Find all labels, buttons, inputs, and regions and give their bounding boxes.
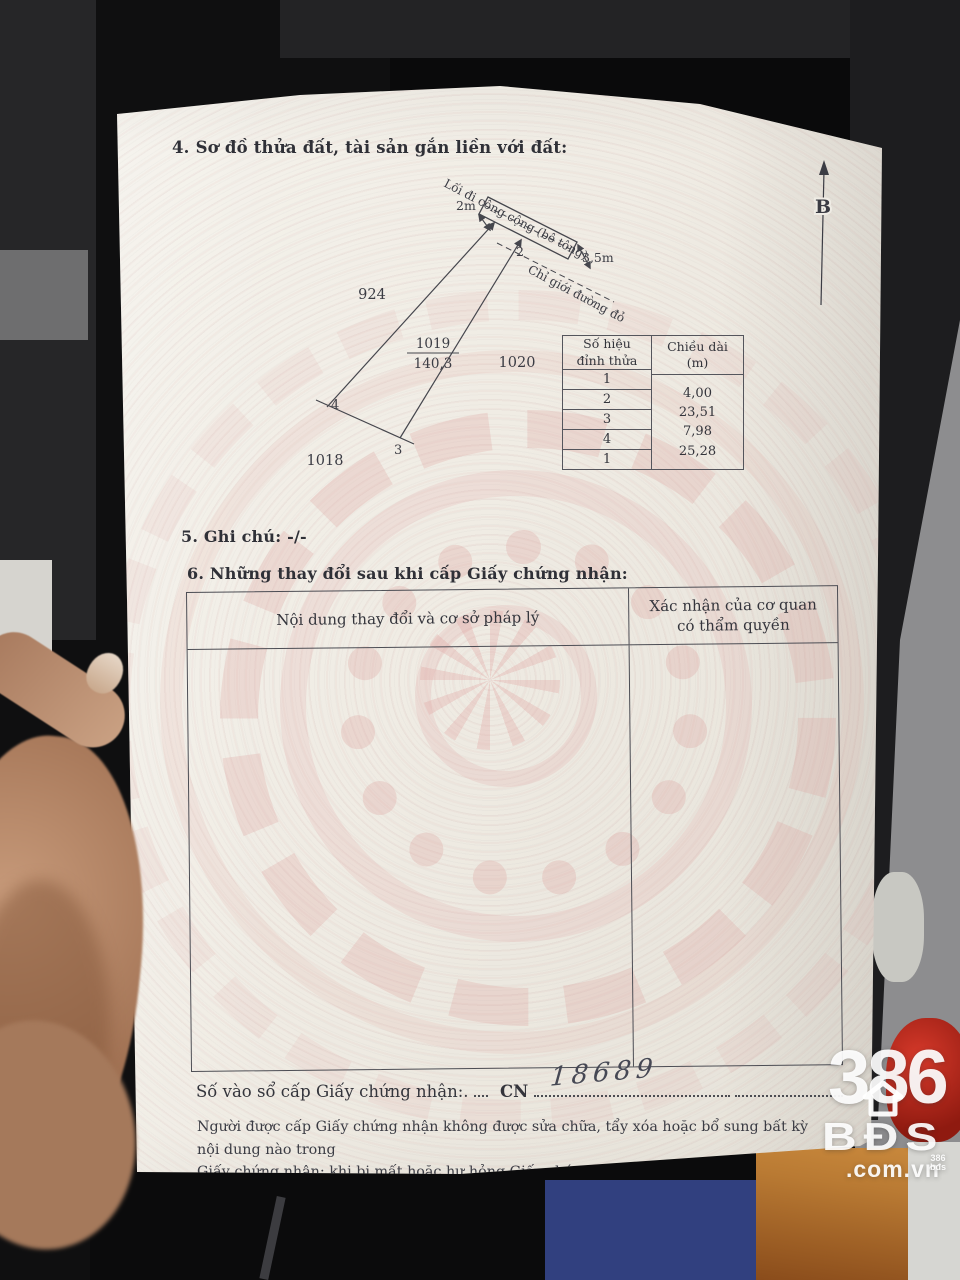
notice-line1: Người được cấp Giấy chứng nhận không đượ… xyxy=(197,1116,821,1161)
length-header-line2: (m) xyxy=(687,355,709,371)
neighbor-parcel-924: 924 xyxy=(358,287,386,303)
vertex-id-cell: 1 xyxy=(563,450,651,469)
changes-col1-header: Nội dung thay đổi và cơ sở pháp lý xyxy=(187,588,630,649)
changes-col2-line1: Xác nhận của cơ quan xyxy=(649,594,817,616)
watermark-mini-logo: 386 bđs xyxy=(930,1154,946,1172)
dotted-leader xyxy=(735,1082,843,1097)
neighbor-parcel-1020: 1020 xyxy=(499,355,536,371)
changes-table-body xyxy=(188,643,842,1071)
background-door-lintel xyxy=(280,0,920,58)
changes-table-header: Nội dung thay đổi và cơ sở pháp lý Xác n… xyxy=(187,586,838,650)
length-column-header: Chiều dài (m) xyxy=(652,336,743,375)
watermark-mini-brand: bđs xyxy=(930,1163,946,1172)
dotted-leader: 18689 xyxy=(534,1082,730,1097)
vertex-id-cell: 1 xyxy=(563,370,651,390)
length-header-line1: Chiều dài xyxy=(667,339,728,355)
changes-col1-empty xyxy=(188,645,634,1071)
parcel-edge-4-1 xyxy=(327,223,494,407)
changes-col2-header: Xác nhận của cơ quan có thẩm quyền xyxy=(629,586,838,644)
vertex-column-header: Số hiệu đỉnh thửa xyxy=(563,336,651,370)
length-value: 4,00 xyxy=(652,384,743,403)
parcel-number-label: 1019 xyxy=(416,336,450,352)
north-label: B xyxy=(815,196,831,218)
edge-length-table: Số hiệu đỉnh thửa 1 2 3 4 1 Chiều dài (m… xyxy=(562,335,744,470)
vertex-header-line2: đỉnh thửa xyxy=(577,353,638,369)
background-white-object xyxy=(872,872,924,982)
north-arrow: B xyxy=(795,150,855,315)
vertex-id-cell: 2 xyxy=(563,390,651,410)
parcel-area-label: 140,3 xyxy=(414,356,453,372)
length-value: 7,98 xyxy=(652,422,743,441)
changes-table: Nội dung thay đổi và cơ sở pháp lý Xác n… xyxy=(186,585,843,1072)
changes-col2-line2: có thẩm quyền xyxy=(677,615,790,636)
red-boundary-label: Chỉ giới đường đỏ xyxy=(526,262,628,325)
vertex-id-cell: 4 xyxy=(563,430,651,450)
certificate-page: 4. Sơ đồ thửa đất, tài sản gắn liền với … xyxy=(0,0,960,1280)
length-value: 23,51 xyxy=(652,403,743,422)
length-value: 25,28 xyxy=(652,442,743,461)
watermark-brand: BĐS xyxy=(822,1118,944,1157)
section6-title: 6. Những thay đổi sau khi cấp Giấy chứng… xyxy=(187,564,628,583)
neighbor-parcel-1018: 1018 xyxy=(307,453,344,469)
vertex-3-label: 3 xyxy=(394,443,402,458)
dotted-leader xyxy=(474,1082,488,1097)
background-wall-patch xyxy=(0,250,88,340)
north-arrow-line xyxy=(821,170,824,305)
vertex-4-label: 4 xyxy=(331,398,339,413)
section5-title: 5. Ghi chú: -/- xyxy=(181,527,307,546)
vertex-column: Số hiệu đỉnh thửa 1 2 3 4 1 xyxy=(563,336,652,469)
page-content: 4. Sơ đồ thửa đất, tài sản gắn liền với … xyxy=(0,0,960,1280)
registry-code: CN xyxy=(500,1082,528,1101)
photo-of-land-certificate: 4. Sơ đồ thửa đất, tài sản gắn liền với … xyxy=(0,0,960,1280)
house-icon xyxy=(862,1080,904,1118)
registry-label: Số vào sổ cấp Giấy chứng nhận:. xyxy=(196,1082,469,1101)
north-arrow-head xyxy=(819,160,829,175)
watermark-domain: .com.vn xyxy=(846,1156,940,1183)
vertex-header-line1: Số hiệu xyxy=(583,336,631,352)
section4-title: 4. Sơ đồ thửa đất, tài sản gắn liền với … xyxy=(172,138,567,157)
changes-col2-empty xyxy=(630,643,842,1066)
dimension-left-label: 2m xyxy=(456,198,476,213)
length-values: 4,00 23,51 7,98 25,28 xyxy=(652,375,743,461)
length-column: Chiều dài (m) 4,00 23,51 7,98 25,28 xyxy=(652,336,743,469)
registry-line: Số vào sổ cấp Giấy chứng nhận:. CN 18689 xyxy=(196,1082,843,1101)
background-blue-object xyxy=(545,1180,760,1280)
vertex-id-cell: 3 xyxy=(563,410,651,430)
vertex-2-label: 2 xyxy=(516,244,524,259)
